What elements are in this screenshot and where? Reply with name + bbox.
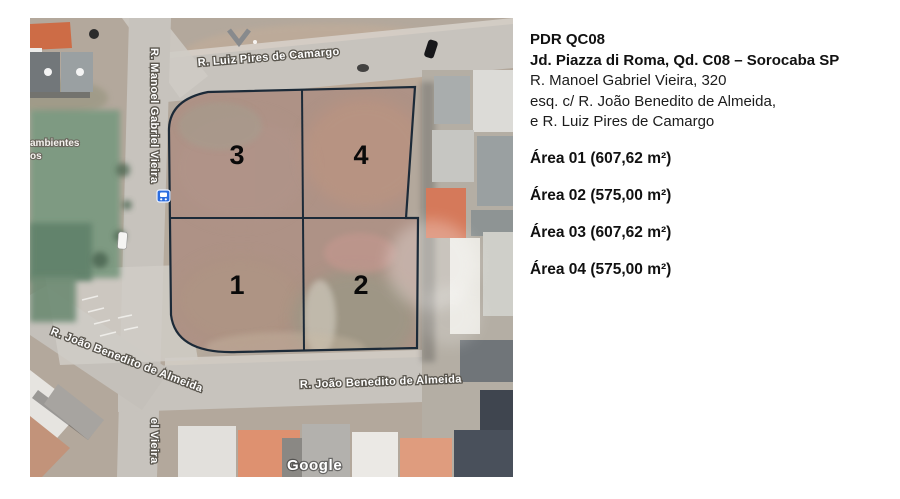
area-list: Área 01 (607,62 m²) Área 02 (575,00 m²) … (530, 149, 890, 279)
map-image: 3 4 1 2 R. Luiz Pires de Camargo R. Mano… (30, 18, 513, 477)
area-04: Área 04 (575,00 m²) (530, 260, 890, 279)
page: 3 4 1 2 R. Luiz Pires de Camargo R. Mano… (0, 0, 900, 499)
lot-number-2: 2 (353, 270, 368, 300)
lot-number-4: 4 (353, 140, 368, 170)
address-line-3: e R. Luiz Pires de Camargo (530, 112, 890, 133)
neighbor-label-line2: os (30, 151, 42, 162)
address-line-2: esq. c/ R. João Benedito de Almeida, (530, 92, 890, 113)
area-01: Área 01 (607,62 m²) (530, 149, 890, 168)
neighbor-label-line1: ambientes (30, 138, 80, 149)
street-label-vieira-partial: el Vieira (148, 418, 160, 464)
area-02: Área 02 (575,00 m²) (530, 186, 890, 205)
address-line-1: R. Manoel Gabriel Vieira, 320 (530, 71, 890, 92)
info-panel: PDR QC08 Jd. Piazza di Roma, Qd. C08 – S… (530, 30, 890, 279)
bus-stop-icon (157, 190, 170, 202)
lot-number-3: 3 (229, 140, 244, 170)
area-03: Área 03 (607,62 m²) (530, 223, 890, 242)
street-label-manoel-gabriel-vieira: R. Manoel Gabriel Vieira (148, 48, 160, 184)
haze-highlight-2 (420, 286, 480, 346)
google-watermark: Google (287, 457, 342, 474)
doc-title: PDR QC08 (530, 30, 890, 51)
doc-subtitle: Jd. Piazza di Roma, Qd. C08 – Sorocaba S… (530, 51, 890, 72)
lot-number-1: 1 (229, 270, 244, 300)
